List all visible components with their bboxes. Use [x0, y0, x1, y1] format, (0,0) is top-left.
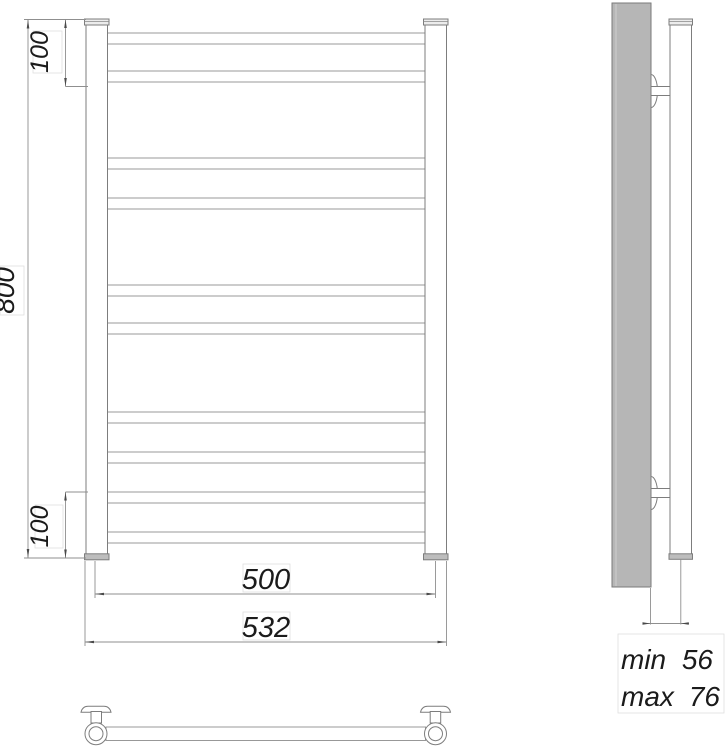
- arrowhead-right-icon: [427, 593, 436, 596]
- arrowhead-left-icon: [85, 641, 94, 644]
- dim-label-500: 500: [242, 564, 290, 596]
- towel-rail-drawing: 800 100 100 500 532: [0, 0, 728, 746]
- left-post-section-outer: [85, 723, 107, 745]
- rung-2: [106, 71, 426, 82]
- arrowhead-up-icon: [27, 20, 30, 29]
- right-bracket-stem: [430, 712, 441, 724]
- dim-value-min: 56: [682, 644, 714, 675]
- dim-label-100-bottom: 100: [26, 506, 54, 548]
- rung-7: [106, 412, 426, 423]
- rung-6: [106, 323, 426, 334]
- rung-5: [106, 285, 426, 296]
- arrowhead-down-icon: [64, 78, 67, 87]
- side-post-bottom-cap: [669, 554, 693, 560]
- rung-8: [106, 452, 426, 463]
- dim-label-532: 532: [242, 612, 290, 644]
- arrowhead-left-icon: [681, 622, 689, 625]
- right-post-section-outer: [425, 723, 447, 745]
- arrowhead-right-icon: [438, 641, 447, 644]
- rung-9: [106, 492, 426, 503]
- dimension-bottom-offset-100: 100: [26, 492, 88, 558]
- dimension-rail-span-500: 500: [95, 561, 436, 598]
- arrowhead-down-icon: [27, 549, 30, 558]
- wall: [612, 3, 651, 587]
- side-view: [612, 3, 693, 587]
- dim-label-800: 800: [0, 267, 20, 314]
- crossbar-tube: [106, 727, 426, 741]
- arrowhead-down-icon: [64, 550, 67, 559]
- lower-bracket-arm: [651, 489, 671, 498]
- rung-4: [106, 198, 426, 209]
- left-post: [86, 22, 108, 558]
- arrowhead-left-icon: [95, 593, 104, 596]
- left-bracket-stem: [91, 712, 102, 724]
- dimension-height-800: 800: [0, 20, 86, 559]
- left-post-bottom-cap: [85, 554, 110, 560]
- arrowhead-up-icon: [64, 492, 67, 501]
- plan-view: [81, 706, 451, 744]
- arrowhead-right-icon: [643, 622, 651, 625]
- rung-3: [106, 158, 426, 169]
- front-view: [85, 19, 449, 560]
- dim-label-100-top: 100: [26, 31, 54, 73]
- right-post: [425, 22, 447, 558]
- dim-value-max: 76: [689, 681, 721, 712]
- dim-label-min: min: [621, 644, 666, 675]
- upper-bracket-arm: [651, 87, 671, 96]
- side-post: [670, 22, 692, 558]
- technical-drawing-page: 800 100 100 500 532: [0, 0, 728, 746]
- right-post-bottom-cap: [424, 554, 449, 560]
- dim-label-max: max: [621, 681, 675, 712]
- dimension-top-offset-100: 100: [26, 20, 88, 87]
- rung-10: [106, 532, 426, 543]
- arrowhead-up-icon: [64, 20, 67, 29]
- rung-1: [106, 33, 426, 44]
